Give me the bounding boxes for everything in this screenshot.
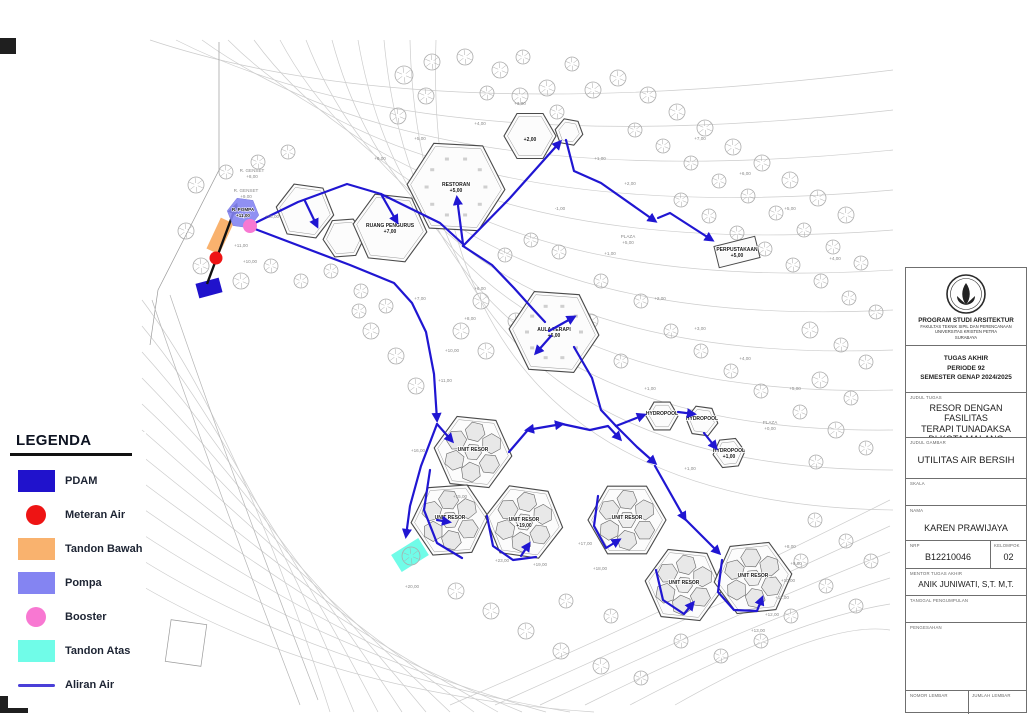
svg-text:+7,00: +7,00	[414, 296, 426, 301]
svg-text:R. GENSET: R. GENSET	[240, 168, 265, 173]
project-title-section: JUDUL TUGAS RESOR DENGAN FASILITAS TERAP…	[906, 393, 1026, 438]
legend-item-meteran-air: Meteran Air	[8, 504, 146, 526]
legend-item-label: PDAM	[65, 475, 97, 487]
svg-text:+9,00: +9,00	[240, 194, 252, 199]
scale-label: SKALA	[910, 481, 1022, 486]
svg-text:+1,00: +1,00	[644, 386, 656, 391]
svg-text:+20,00: +20,00	[405, 584, 420, 589]
legend-item-aliran-air: Aliran Air	[8, 674, 146, 696]
project-title: RESOR DENGAN FASILITAS TERAPI TUNADAKSA …	[910, 403, 1022, 438]
legend-item-label: Tandon Bawah	[65, 543, 142, 555]
title-block-institution: PROGRAM STUDI ARSITEKTUR FAKULTAS TEKNIK…	[906, 268, 1026, 346]
legend-item-label: Meteran Air	[65, 509, 125, 521]
legend-swatch-rect-icon	[18, 640, 55, 662]
svg-text:+13,00: +13,00	[265, 214, 280, 219]
svg-text:+10,00: +10,00	[781, 578, 796, 583]
mentor-section: MENTOR TUGAS AKHIR ANIK JUNIWATI, S,T. M…	[906, 569, 1026, 596]
svg-text:+5,00: +5,00	[450, 188, 463, 194]
svg-text:+15,00: +15,00	[453, 494, 468, 499]
nrp-value: B12210046	[910, 552, 986, 562]
mentor-name: ANIK JUNIWATI, S,T. M,T.	[910, 580, 1022, 589]
nrp-label: NRP	[910, 543, 986, 548]
course-info: TUGAS AKHIR PERIODE 92 SEMESTER GENAP 20…	[906, 346, 1026, 393]
student-name-section: NAMA KAREN PRAWIJAYA	[906, 506, 1026, 541]
sheet-count-label: JUMLAH LEMBAR	[972, 693, 1023, 698]
legend-item-booster: Booster	[8, 606, 146, 628]
svg-text:-1,00: -1,00	[555, 206, 566, 211]
sheet-number-label: NOMOR LEMBAR	[910, 693, 964, 698]
legend-swatch-circle-icon	[26, 505, 46, 525]
nrp-cell: NRP B12210046	[906, 541, 990, 568]
city-name: SURABAYA	[910, 335, 1022, 340]
legend-swatch-rect-icon	[18, 572, 55, 594]
kelompok-value: 02	[994, 552, 1023, 562]
legend-swatch-line-icon	[18, 684, 55, 687]
svg-text:R. POMPA: R. POMPA	[232, 207, 255, 212]
kelompok-label: KELOMPOK	[994, 543, 1023, 548]
svg-text:PLAZA: PLAZA	[763, 420, 778, 425]
legend-item-pdam: PDAM	[8, 470, 146, 492]
svg-text:+7,00: +7,00	[384, 229, 397, 235]
svg-text:+8,00: +8,00	[784, 544, 796, 549]
approval-section: PENGESAHAN	[906, 623, 1026, 691]
approval-label: PENGESAHAN	[910, 625, 1022, 630]
svg-text:+9,00: +9,00	[790, 561, 802, 566]
svg-text:+11,00: +11,00	[438, 378, 452, 383]
svg-text:+6,00: +6,00	[739, 171, 751, 176]
tandon-atas-marker	[391, 538, 429, 572]
legend-panel: LEGENDA PDAMMeteran AirTandon BawahPompa…	[8, 432, 146, 708]
site-plan: RUANG PENGURUS+7,00RESTORAN+5,00+2,00AUL…	[0, 0, 1029, 713]
legend-swatch-rect-icon	[18, 538, 55, 560]
drawing-title: UTILITAS AIR BERSIH	[910, 455, 1022, 466]
legend-item-label: Booster	[65, 611, 107, 623]
legend-item-tandon-bawah: Tandon Bawah	[8, 538, 146, 560]
svg-text:HYDROPOOL: HYDROPOOL	[686, 416, 718, 422]
svg-text:+10,00: +10,00	[445, 348, 460, 353]
svg-text:UNIT RESOR: UNIT RESOR	[458, 447, 489, 453]
svg-text:+17,00: +17,00	[578, 541, 593, 546]
svg-text:UNIT RESOR: UNIT RESOR	[669, 580, 700, 586]
svg-text:+5,00: +5,00	[622, 240, 634, 245]
legend-swatch-circle-icon	[26, 607, 46, 627]
svg-text:+18,00: +18,00	[593, 566, 608, 571]
svg-text:+0,00: +0,00	[764, 426, 776, 431]
svg-text:+8,00: +8,00	[464, 316, 476, 321]
svg-text:PLAZA: PLAZA	[621, 234, 636, 239]
booster-marker	[243, 219, 257, 233]
university-logo-icon	[943, 273, 989, 315]
svg-text:UNIT RESOR: UNIT RESOR	[612, 515, 643, 521]
svg-text:+3,00: +3,00	[514, 101, 526, 106]
svg-text:UNIT RESOR: UNIT RESOR	[738, 573, 769, 579]
svg-text:+1,00: +1,00	[723, 454, 736, 460]
sheet-number-cell: NOMOR LEMBAR	[906, 691, 968, 714]
legend-underline	[10, 453, 132, 456]
svg-text:+2,00: +2,00	[654, 296, 666, 301]
student-name: KAREN PRAWIJAYA	[910, 523, 1022, 533]
svg-text:+5,00: +5,00	[784, 206, 796, 211]
nrp-kelompok-section: NRP B12210046 KELOMPOK 02	[906, 541, 1026, 569]
svg-text:+13,00: +13,00	[751, 628, 766, 633]
svg-text:+8,00: +8,00	[246, 174, 258, 179]
legend-item-label: Pompa	[65, 577, 102, 589]
legend-title: LEGENDA	[8, 432, 146, 449]
legend-items: PDAMMeteran AirTandon BawahPompaBoosterT…	[8, 470, 146, 696]
kelompok-cell: KELOMPOK 02	[990, 541, 1026, 568]
svg-text:+12,00: +12,00	[765, 612, 780, 617]
svg-text:+5,00: +5,00	[731, 253, 744, 259]
legend-item-label: Aliran Air	[65, 679, 114, 691]
legend-swatch-rect-icon	[18, 470, 55, 492]
svg-text:+4,00: +4,00	[829, 256, 841, 261]
meteran-air-marker	[210, 252, 223, 265]
svg-text:+19,00: +19,00	[516, 523, 532, 529]
legend-item-label: Tandon Atas	[65, 645, 130, 657]
svg-text:+11,00: +11,00	[236, 213, 250, 218]
drawing-title-section: JUDUL GAMBAR UTILITAS AIR BERSIH	[906, 438, 1026, 479]
legend-item-tandon-atas: Tandon Atas	[8, 640, 146, 662]
svg-text:+19,00: +19,00	[533, 562, 548, 567]
svg-text:+11,00: +11,00	[775, 595, 789, 600]
svg-text:+1,00: +1,00	[604, 251, 616, 256]
svg-text:HYDROPOOL: HYDROPOOL	[646, 411, 678, 417]
title-block: PROGRAM STUDI ARSITEKTUR FAKULTAS TEKNIK…	[905, 267, 1027, 713]
sheet-count-cell: JUMLAH LEMBAR	[968, 691, 1026, 714]
drawing-sheet: RUANG PENGURUS+7,00RESTORAN+5,00+2,00AUL…	[0, 0, 1029, 713]
svg-text:+3,00: +3,00	[694, 326, 706, 331]
svg-text:+6,00: +6,00	[474, 286, 486, 291]
svg-text:+11,00: +11,00	[234, 243, 248, 248]
svg-text:+10,00: +10,00	[243, 259, 258, 264]
svg-text:+5,00: +5,00	[789, 386, 801, 391]
svg-text:+4,00: +4,00	[739, 356, 751, 361]
svg-text:+1,00: +1,00	[594, 156, 606, 161]
svg-text:+1,00: +1,00	[684, 466, 696, 471]
student-name-label: NAMA	[910, 508, 1022, 513]
submission-date-section: TANGGAL PENGUMPULAN	[906, 596, 1026, 623]
svg-text:+16,00: +16,00	[411, 448, 426, 453]
legend-item-pompa: Pompa	[8, 572, 146, 594]
svg-text:+23,00: +23,00	[495, 558, 510, 563]
project-title-label: JUDUL TUGAS	[910, 395, 1022, 400]
svg-text:+2,00: +2,00	[524, 137, 537, 143]
svg-text:R. GENSET: R. GENSET	[234, 188, 259, 193]
svg-text:+5,00: +5,00	[414, 136, 426, 141]
svg-text:+4,00: +4,00	[474, 121, 486, 126]
svg-text:+6,00: +6,00	[374, 156, 386, 161]
svg-text:+7,00: +7,00	[694, 136, 706, 141]
drawing-title-label: JUDUL GAMBAR	[910, 440, 1022, 445]
sheet-number-section: NOMOR LEMBAR JUMLAH LEMBAR	[906, 691, 1026, 714]
svg-text:+2,00: +2,00	[624, 181, 636, 186]
submission-date-label: TANGGAL PENGUMPULAN	[910, 598, 1022, 603]
program-name: PROGRAM STUDI ARSITEKTUR	[910, 317, 1022, 324]
scale-section: SKALA	[906, 479, 1026, 506]
buildings: RUANG PENGURUS+7,00RESTORAN+5,00+2,00AUL…	[276, 114, 792, 621]
mentor-label: MENTOR TUGAS AKHIR	[910, 571, 1022, 576]
